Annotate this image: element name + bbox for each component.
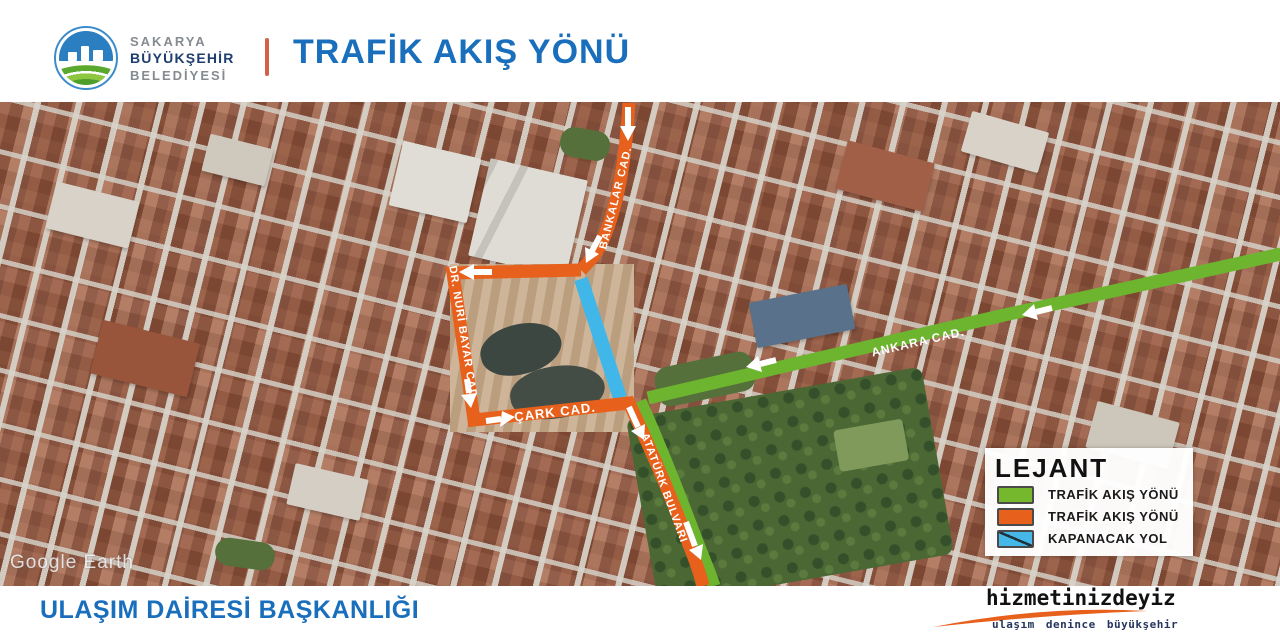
legend-item-green-flow: TRAFİK AKIŞ YÖNÜ — [997, 487, 1193, 502]
route-ankara-green — [648, 254, 1280, 398]
municipality-name: SAKARYA BÜYÜKŞEHİR BELEDİYESİ — [130, 33, 235, 84]
header: SAKARYA BÜYÜKŞEHİR BELEDİYESİ TRAFİK AKI… — [0, 0, 1280, 102]
route-loop-orange — [453, 270, 703, 586]
logo-skyline-field-icon — [59, 31, 113, 85]
logo-building-icon — [93, 50, 103, 61]
route-ataturk-green — [640, 401, 714, 586]
closed-road-swatch — [997, 530, 1034, 548]
green-route-swatch — [997, 486, 1034, 504]
page-title: TRAFİK AKIŞ YÖNÜ — [293, 33, 630, 72]
municipality-line1: SAKARYA — [130, 33, 235, 50]
legend: LEJANT TRAFİK AKIŞ YÖNÜ TRAFİK AKIŞ YÖNÜ… — [985, 448, 1193, 556]
sakarya-logo: SAKARYA BÜYÜKŞEHİR BELEDİYESİ — [54, 26, 235, 90]
orange-route-swatch — [997, 508, 1034, 526]
legend-item-label: TRAFİK AKIŞ YÖNÜ — [1048, 487, 1179, 502]
legend-item-orange-flow: TRAFİK AKIŞ YÖNÜ — [997, 509, 1193, 524]
satellite-map: BANKALAR CAD. DR. NURİ BAYAR CAD. ÇARK C… — [0, 102, 1280, 586]
legend-item-label: TRAFİK AKIŞ YÖNÜ — [1048, 509, 1179, 524]
municipality-line3: BELEDİYESİ — [130, 67, 235, 84]
footer: ULAŞIM DAİRESİ BAŞKANLIĞI hizmetinizdeyi… — [0, 586, 1280, 640]
brand-slogan: hizmetinizdeyiz ulaşım denince büyükşehi… — [930, 586, 1160, 640]
legend-item-label: KAPANACAK YOL — [1048, 531, 1167, 546]
legend-title: LEJANT — [995, 453, 1193, 484]
header-divider — [265, 38, 269, 76]
logo-building-icon — [81, 46, 89, 61]
logo-building-icon — [68, 52, 77, 61]
municipality-line2: BÜYÜKŞEHİR — [130, 50, 235, 67]
department-title: ULAŞIM DAİRESİ BAŞKANLIĞI — [40, 596, 419, 625]
google-earth-watermark: Google Earth — [10, 552, 134, 574]
sakarya-logo-icon — [54, 26, 118, 90]
route-closed-road — [581, 279, 620, 398]
brand-slogan-sub: ulaşım denince büyükşehir — [992, 618, 1178, 631]
legend-item-closed-road: KAPANACAK YOL — [997, 531, 1193, 546]
